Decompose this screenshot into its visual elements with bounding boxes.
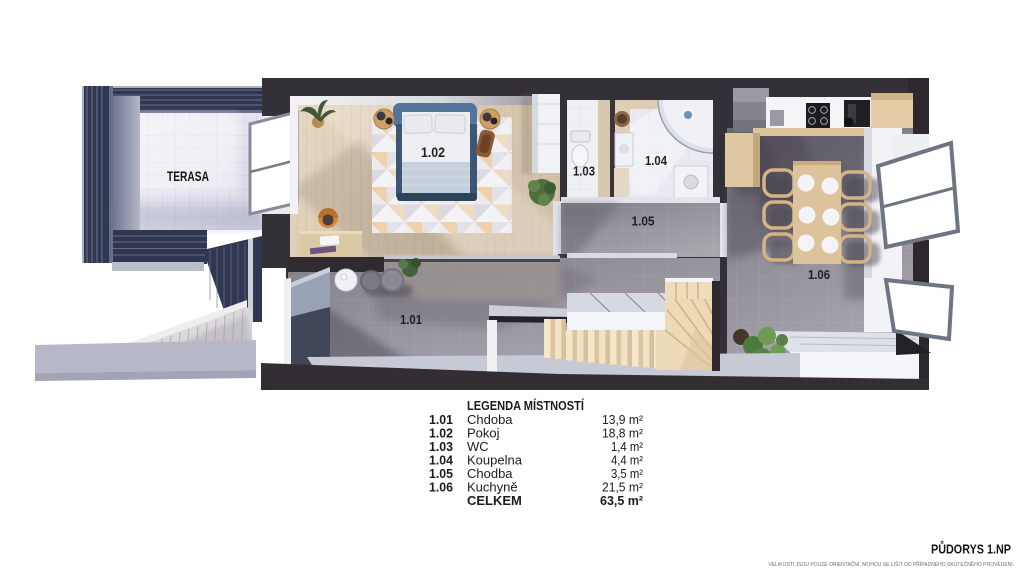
svg-text:VELIKOSTI JSOU POUZE ORIENTAČN: VELIKOSTI JSOU POUZE ORIENTAČNÍ, MOHOU S… (768, 560, 1014, 568)
svg-text:1.05: 1.05 (632, 214, 655, 229)
svg-text:1.06: 1.06 (808, 267, 830, 282)
svg-text:1.06: 1.06 (429, 480, 453, 495)
svg-text:1.04: 1.04 (645, 153, 668, 168)
svg-text:1.03: 1.03 (573, 165, 595, 179)
svg-text:1.01: 1.01 (400, 312, 422, 327)
svg-text:63,5 m²: 63,5 m² (600, 493, 644, 508)
svg-text:1.02: 1.02 (421, 144, 445, 160)
svg-text:PŮDORYS 1.NP: PŮDORYS 1.NP (931, 541, 1011, 557)
svg-text:CELKEM: CELKEM (467, 493, 522, 508)
svg-text:LEGENDA MÍSTNOSTÍ: LEGENDA MÍSTNOSTÍ (467, 398, 584, 413)
svg-text:TERASA: TERASA (167, 168, 209, 184)
